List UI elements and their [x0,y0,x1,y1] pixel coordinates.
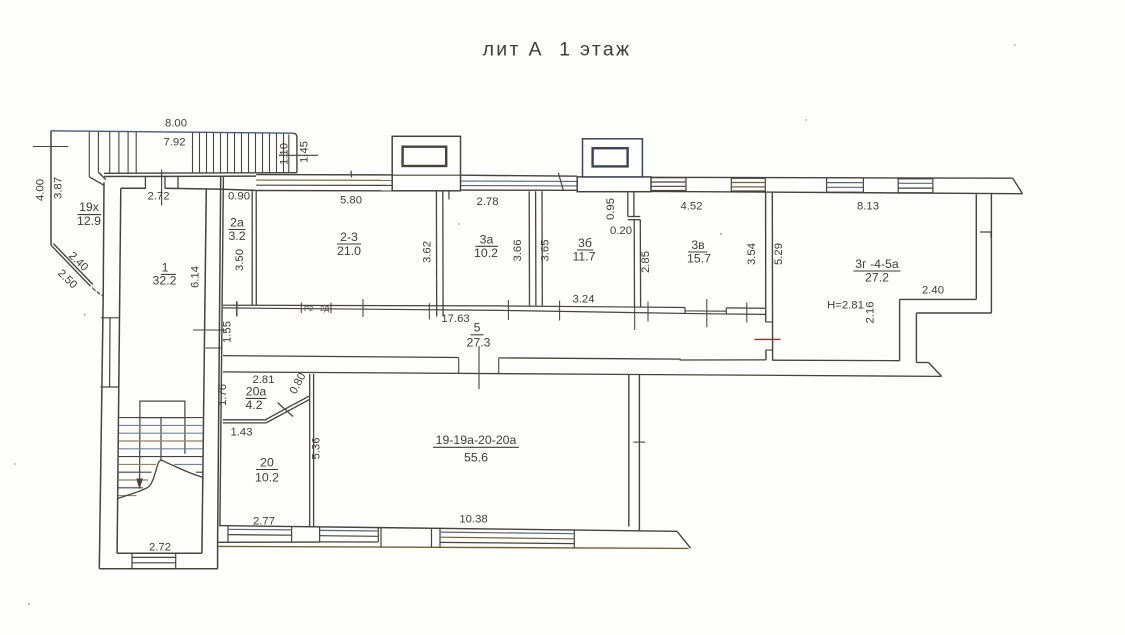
svg-text:1.76: 1.76 [217,384,229,406]
svg-text:2.72: 2.72 [148,191,170,203]
svg-text:5.36: 5.36 [311,438,323,460]
svg-text:27.3: 27.3 [467,336,491,350]
svg-text:27.2: 27.2 [865,271,889,285]
svg-text:2.40: 2.40 [922,285,944,297]
svg-text:Н=2.81: Н=2.81 [827,300,864,312]
svg-text:1.55: 1.55 [222,321,234,343]
svg-text:3.65: 3.65 [540,240,552,262]
svg-text:4.00: 4.00 [35,179,47,201]
svg-text:2.85: 2.85 [640,251,652,273]
svg-text:21.0: 21.0 [337,244,361,258]
svg-text:12.9: 12.9 [77,214,101,228]
svg-text:2-3: 2-3 [340,230,358,244]
svg-text:17.63: 17.63 [441,313,469,325]
svg-text:2.78: 2.78 [477,196,499,208]
svg-text:4.52: 4.52 [681,201,703,213]
svg-text:3.50: 3.50 [234,249,246,271]
svg-text:55.6: 55.6 [464,451,488,465]
svg-text:2.16: 2.16 [865,302,877,324]
svg-text:4.2: 4.2 [245,398,262,412]
svg-text:3в: 3в [691,238,704,252]
svg-text:20а: 20а [246,385,267,399]
svg-text:6.14: 6.14 [190,266,202,288]
svg-text:3.87: 3.87 [53,177,65,199]
svg-text:лит А 1 этаж: лит А 1 этаж [483,39,632,61]
svg-text:10.2: 10.2 [474,246,498,260]
svg-text:11.7: 11.7 [572,250,595,264]
svg-text:15.7: 15.7 [687,252,711,266]
svg-text:3.62: 3.62 [422,241,434,263]
svg-text:7.92: 7.92 [164,137,186,149]
svg-text:19х: 19х [79,200,100,214]
svg-text:5.80: 5.80 [340,195,362,207]
svg-text:8.13: 8.13 [857,201,879,213]
svg-text:1.45: 1.45 [299,141,311,163]
svg-text:3.66: 3.66 [512,240,524,262]
svg-text:0.95: 0.95 [605,198,617,220]
svg-text:3.54: 3.54 [746,243,758,265]
svg-text:Р2: Р2 [304,304,313,313]
svg-text:3.2: 3.2 [228,229,245,243]
svg-text:5: 5 [474,321,481,335]
svg-text:5.29: 5.29 [773,243,785,265]
svg-text:10.38: 10.38 [459,514,487,526]
svg-text:0.80: 0.80 [288,371,309,396]
svg-text:19-19а-20-20а: 19-19а-20-20а [436,433,517,447]
svg-text:8.00: 8.00 [165,118,187,130]
svg-text:3б: 3б [578,236,592,250]
svg-text:2.72: 2.72 [149,542,171,554]
svg-text:3а: 3а [480,233,494,247]
svg-text:3г -4-5а: 3г -4-5а [855,257,899,271]
svg-text:32.2: 32.2 [153,274,177,288]
svg-text:2Д: 2Д [320,304,329,313]
svg-text:2а: 2а [230,216,244,230]
svg-text:3.24: 3.24 [573,294,595,306]
svg-text:20: 20 [260,456,274,470]
svg-text:0.90: 0.90 [228,191,250,203]
svg-text:0.20: 0.20 [610,225,632,237]
svg-text:10.2: 10.2 [255,471,279,485]
svg-text:1: 1 [162,261,169,275]
svg-text:1.10: 1.10 [279,143,291,165]
svg-text:1.43: 1.43 [231,427,253,439]
